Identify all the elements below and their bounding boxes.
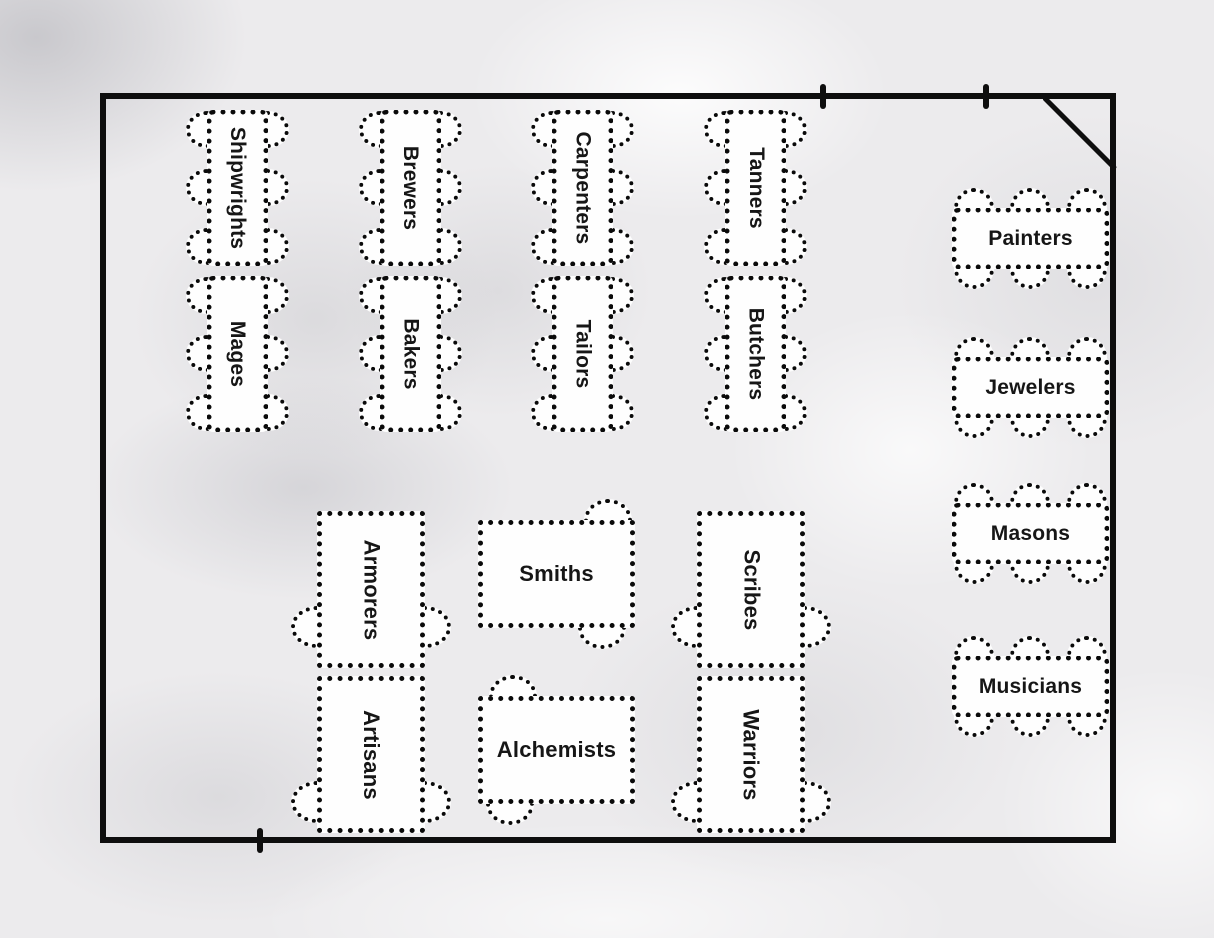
table-label: Alchemists <box>497 737 616 763</box>
table-label: Tailors <box>571 320 595 389</box>
table-shipwrights: Shipwrights <box>207 110 268 266</box>
table-label: Scribes <box>738 549 764 630</box>
table-brewers: Brewers <box>380 110 441 266</box>
table-tanners: Tanners <box>725 110 786 266</box>
table-surface: Scribes <box>697 511 805 668</box>
table-surface: Warriors <box>697 676 805 833</box>
table-surface: Butchers <box>725 276 786 432</box>
table-surface: Tanners <box>725 110 786 266</box>
table-tailors: Tailors <box>552 276 613 432</box>
table-scribes: Scribes <box>697 511 805 668</box>
floor-plan-canvas: Shipwrights Mages Brewers Bakers Carpent… <box>0 0 1214 938</box>
table-label: Shipwrights <box>226 127 250 249</box>
table-label: Mages <box>226 321 250 387</box>
table-masons: Masons <box>952 503 1109 564</box>
table-carpenters: Carpenters <box>552 110 613 266</box>
table-surface: Armorers <box>317 511 425 668</box>
table-surface: Brewers <box>380 110 441 266</box>
wall-tick-top-left <box>820 84 826 109</box>
table-mages: Mages <box>207 276 268 432</box>
table-label: Artisans <box>358 710 384 800</box>
table-surface: Alchemists <box>478 696 635 804</box>
table-label: Warriors <box>738 709 764 800</box>
table-surface: Artisans <box>317 676 425 833</box>
table-painters: Painters <box>952 208 1109 269</box>
table-surface: Jewelers <box>952 357 1109 418</box>
table-surface: Musicians <box>952 656 1109 717</box>
table-surface: Bakers <box>380 276 441 432</box>
table-label: Tanners <box>744 147 768 229</box>
table-label: Butchers <box>744 308 768 401</box>
table-alchemists: Alchemists <box>478 696 635 804</box>
table-label: Bakers <box>399 318 423 389</box>
table-label: Brewers <box>399 146 423 230</box>
table-surface: Mages <box>207 276 268 432</box>
table-warriors: Warriors <box>697 676 805 833</box>
table-label: Masons <box>991 522 1070 546</box>
table-surface: Tailors <box>552 276 613 432</box>
table-jewelers: Jewelers <box>952 357 1109 418</box>
wall-tick-bottom <box>257 828 263 853</box>
table-label: Jewelers <box>985 376 1075 400</box>
wall-tick-top-right <box>983 84 989 109</box>
table-smiths: Smiths <box>478 520 635 628</box>
table-artisans: Artisans <box>317 676 425 833</box>
table-surface: Shipwrights <box>207 110 268 266</box>
table-label: Musicians <box>979 675 1082 699</box>
table-label: Armorers <box>358 539 384 640</box>
table-label: Carpenters <box>571 132 595 245</box>
table-surface: Painters <box>952 208 1109 269</box>
table-butchers: Butchers <box>725 276 786 432</box>
table-label: Smiths <box>519 561 594 587</box>
table-musicians: Musicians <box>952 656 1109 717</box>
table-bakers: Bakers <box>380 276 441 432</box>
table-surface: Smiths <box>478 520 635 628</box>
table-surface: Masons <box>952 503 1109 564</box>
table-surface: Carpenters <box>552 110 613 266</box>
table-armorers: Armorers <box>317 511 425 668</box>
table-label: Painters <box>988 227 1072 251</box>
